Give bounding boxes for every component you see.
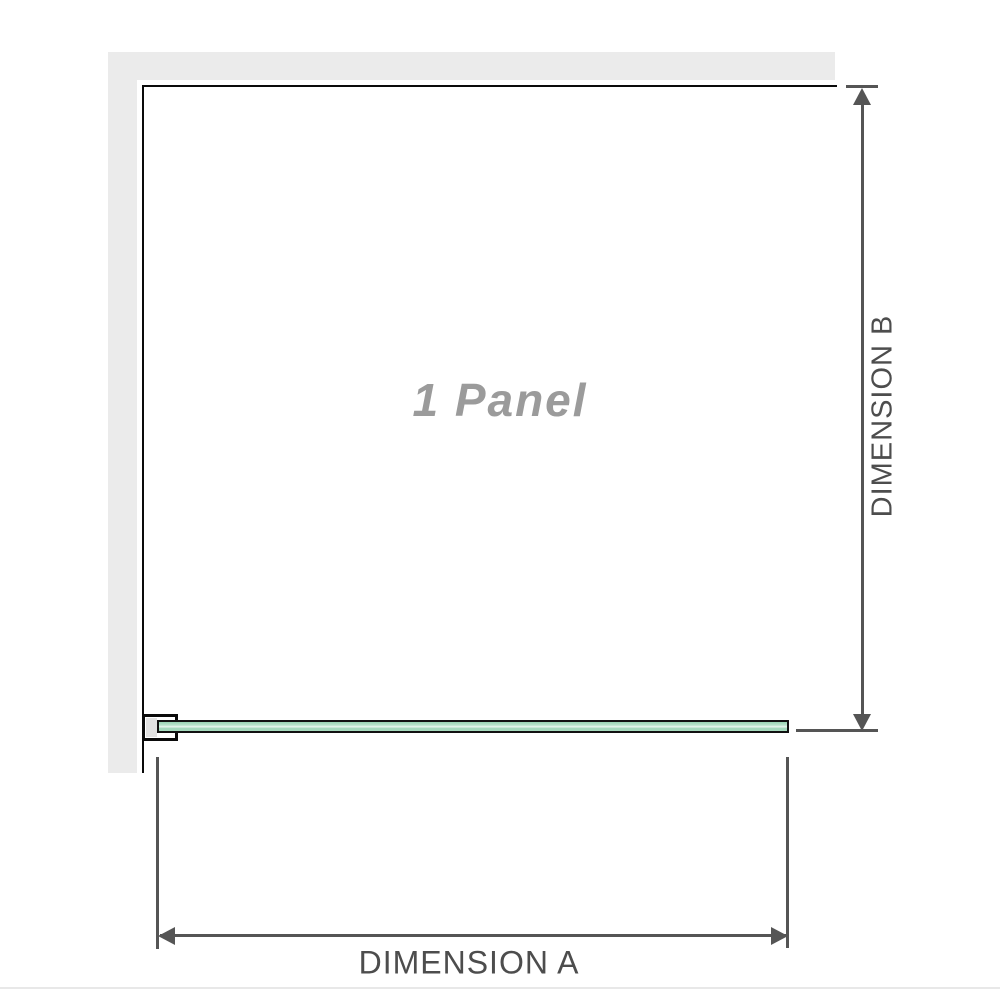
arrow-left-icon xyxy=(158,927,175,945)
dimension-a-label: DIMENSION A xyxy=(359,945,580,982)
bottom-divider xyxy=(0,987,1000,989)
dimension-a-extension-right xyxy=(786,757,789,948)
dimension-a-line xyxy=(160,934,786,937)
glass-panel xyxy=(157,720,789,733)
shower-panel-diagram: 1 Panel DIMENSION B DIMENSION A xyxy=(0,0,1000,1000)
arrow-right-icon xyxy=(771,927,788,945)
enclosure-top-edge xyxy=(142,85,837,87)
dimension-a-extension-left xyxy=(156,757,159,949)
arrow-up-icon xyxy=(853,88,871,105)
dimension-b-label: DIMENSION B xyxy=(867,315,900,518)
wall-left-segment xyxy=(108,52,137,773)
wall-bracket-inset xyxy=(146,718,157,737)
wall-top-segment xyxy=(108,52,835,80)
panel-count-label: 1 Panel xyxy=(412,373,587,427)
enclosure-left-edge xyxy=(142,85,144,773)
dimension-b-line xyxy=(861,94,864,722)
arrow-down-icon xyxy=(853,714,871,731)
